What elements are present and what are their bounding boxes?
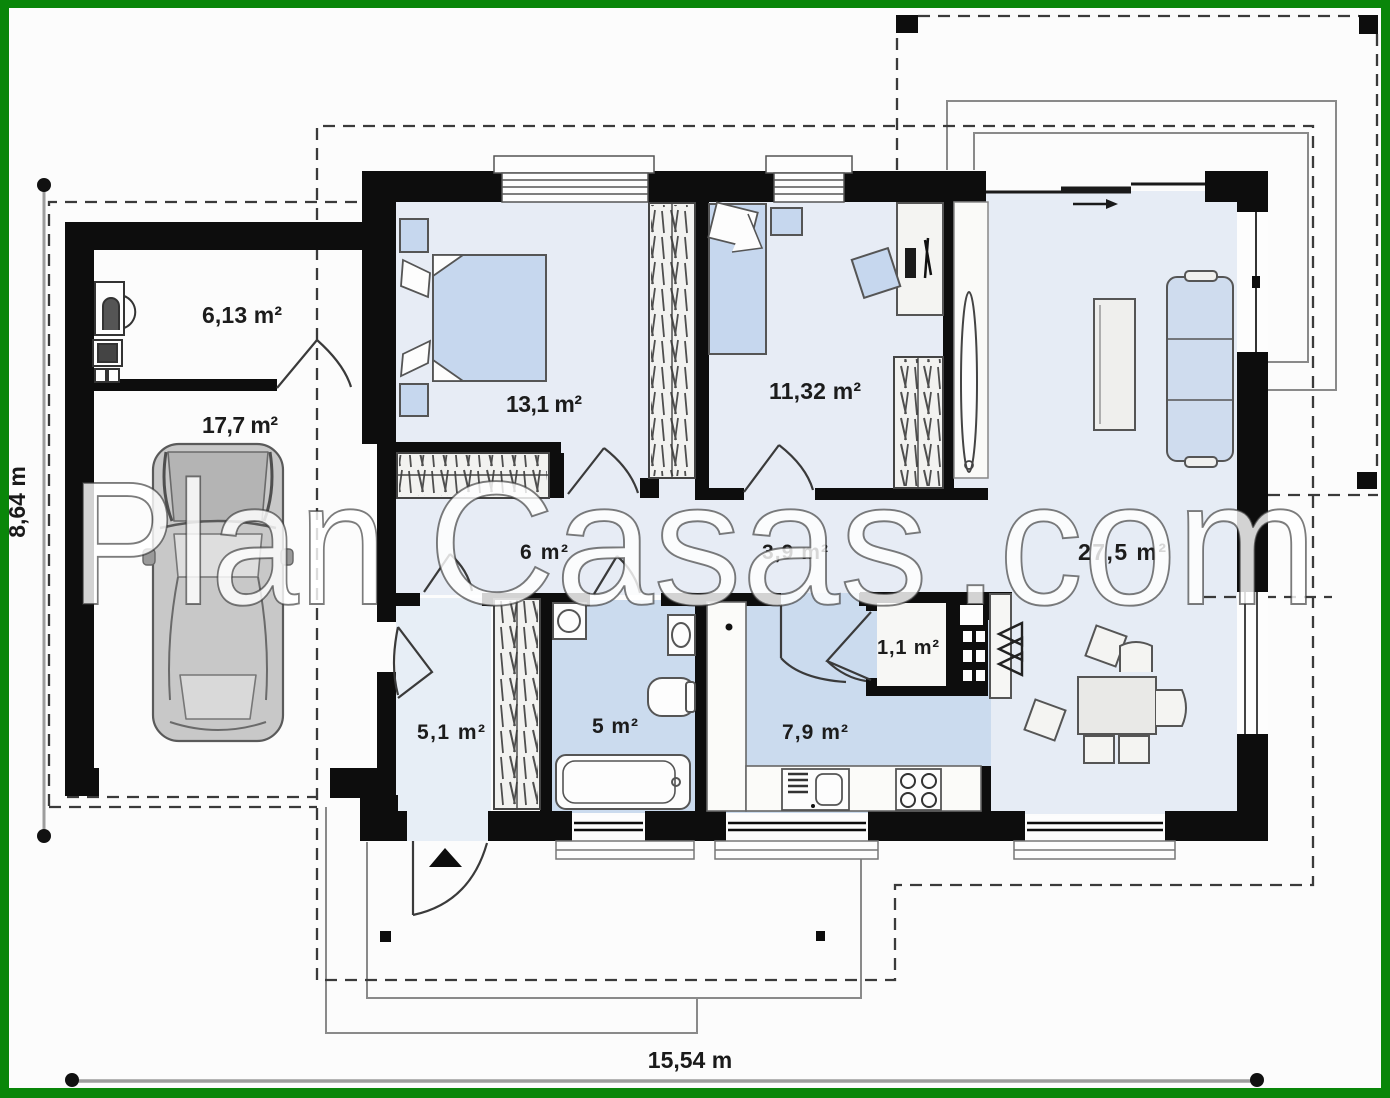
svg-text:Casas: Casas — [428, 446, 928, 642]
svg-text:5 m²: 5 m² — [592, 715, 638, 738]
svg-text:.com: .com — [952, 446, 1317, 642]
svg-text:6,13 m²: 6,13 m² — [202, 302, 282, 328]
svg-text:15,54 m: 15,54 m — [648, 1047, 732, 1073]
svg-text:5,1 m²: 5,1 m² — [417, 721, 485, 744]
svg-text:11,32 m²: 11,32 m² — [769, 378, 861, 404]
svg-text:7,9 m²: 7,9 m² — [782, 721, 848, 744]
svg-text:13,1 m²: 13,1 m² — [506, 391, 582, 417]
svg-text:Plan: Plan — [70, 446, 387, 642]
svg-text:17,7 m²: 17,7 m² — [202, 412, 278, 438]
